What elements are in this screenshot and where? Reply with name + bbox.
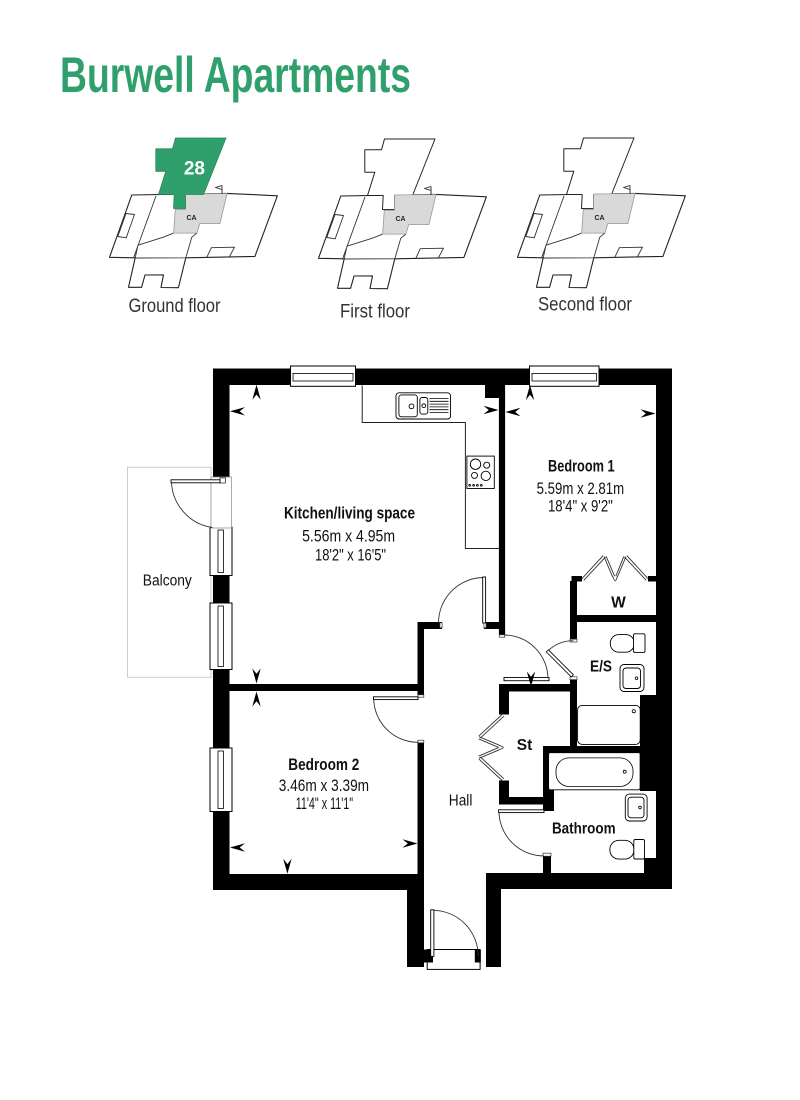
svg-text:3.46m x 3.39m: 3.46m x 3.39m (279, 777, 369, 795)
svg-text:CA: CA (395, 216, 405, 223)
svg-text:St: St (517, 737, 533, 754)
svg-text:18'4" x 9'2": 18'4" x 9'2" (548, 498, 613, 516)
svg-text:Bathroom: Bathroom (552, 821, 616, 838)
svg-text:Bedroom 1: Bedroom 1 (548, 458, 615, 476)
svg-text:E/S: E/S (590, 659, 612, 676)
svg-text:Kitchen/living space: Kitchen/living space (284, 505, 415, 523)
svg-text:5.56m x 4.95m: 5.56m x 4.95m (302, 528, 395, 546)
svg-text:18'2" x 16'5": 18'2" x 16'5" (315, 547, 386, 565)
svg-text:Ground floor: Ground floor (129, 296, 222, 317)
svg-text:CA: CA (186, 215, 196, 222)
svg-text:Second floor: Second floor (538, 295, 633, 316)
svg-text:Hall: Hall (449, 793, 473, 810)
svg-text:Balcony: Balcony (143, 573, 192, 590)
svg-text:CA: CA (594, 215, 604, 222)
svg-text:5.59m x 2.81m: 5.59m x 2.81m (537, 480, 625, 498)
svg-text:First floor: First floor (340, 302, 411, 323)
svg-text:Burwell Apartments: Burwell Apartments (60, 47, 411, 103)
svg-text:Bedroom 2: Bedroom 2 (288, 756, 359, 774)
svg-text:28: 28 (184, 159, 205, 180)
svg-text:W: W (611, 595, 626, 612)
svg-text:11'4" x 11'1": 11'4" x 11'1" (296, 795, 354, 813)
